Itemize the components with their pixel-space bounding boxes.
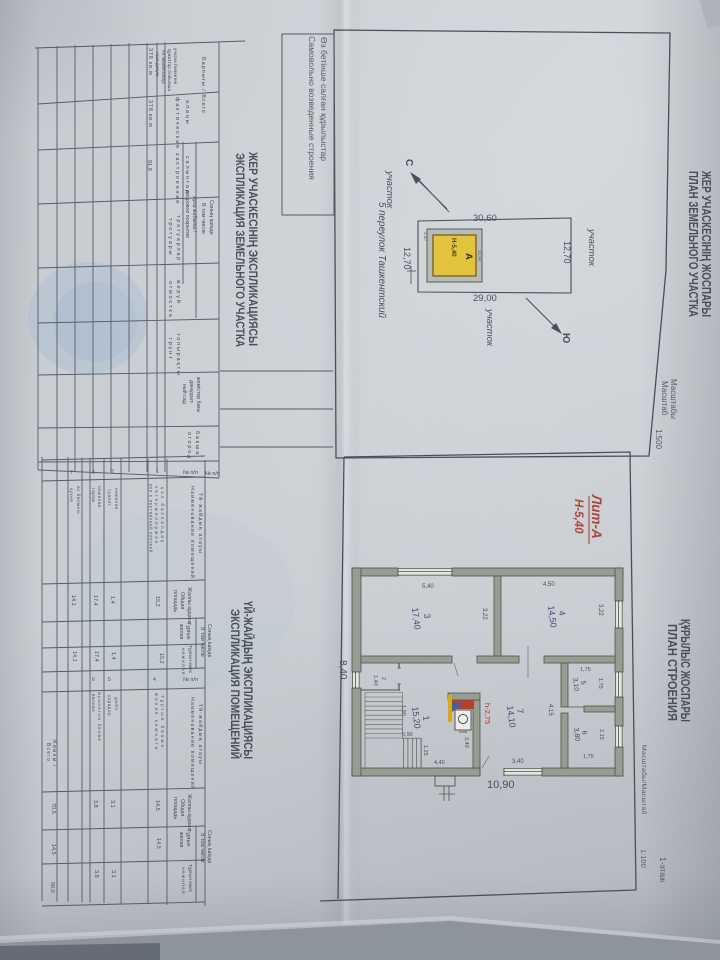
svg-text:әула жабыны /: әула жабыны / xyxy=(191,196,197,233)
svg-text:7: 7 xyxy=(70,470,73,476)
svg-text:Тұрғын бөлме: Тұрғын бөлме xyxy=(160,695,165,749)
svg-text:Үй-жайдың атауы: Үй-жайдың атауы xyxy=(197,704,204,765)
svg-text:Тұрғын: Тұрғын xyxy=(185,622,191,640)
svg-text:№ п/п: № п/п xyxy=(183,677,198,683)
svg-text:1,75: 1,75 xyxy=(597,678,603,689)
svg-text:91,8: 91,8 xyxy=(146,160,152,171)
svg-text:1,90: 1,90 xyxy=(400,705,406,716)
svg-text:1,4: 1,4 xyxy=(109,596,115,604)
svg-text:3,22: 3,22 xyxy=(481,608,487,620)
svg-text:нежилая: нежилая xyxy=(180,867,185,895)
svg-text:1-этаж: 1-этаж xyxy=(658,857,668,883)
svg-text:тротуарлар: тротуарлар xyxy=(175,215,181,262)
svg-text:дәнқорат-: дәнқорат- xyxy=(188,380,194,404)
svg-text:1,75: 1,75 xyxy=(583,754,594,760)
svg-text:Үй-жайдың атауы: Үй-жайдың атауы xyxy=(197,493,204,554)
svg-text:по землеотвод-: по землеотвод- xyxy=(160,50,165,85)
svg-text:В том числе: В том числе xyxy=(199,627,205,657)
svg-text:2: 2 xyxy=(111,469,114,475)
svg-text:грунт: грунт xyxy=(167,338,173,360)
svg-text:2,40: 2,40 xyxy=(463,737,469,748)
svg-text:15,2: 15,2 xyxy=(154,596,160,607)
svg-text:топырақты: топырақты xyxy=(175,333,181,377)
svg-text:жуынатын бөлме: жуынатын бөлме xyxy=(97,692,102,742)
svg-text:ным докум.: ным докум. xyxy=(154,52,159,77)
svg-text:Соның ішінде: Соның ішінде xyxy=(206,624,212,658)
svg-text:3,8: 3,8 xyxy=(93,870,99,878)
svg-text:жилая комната: жилая комната xyxy=(154,693,159,751)
svg-text:учаске бөлінгені: учаске бөлінгені xyxy=(172,48,178,84)
svg-text:ПЛАН СТРОЕНИЯ: ПЛАН СТРОЕНИЯ xyxy=(665,624,679,721)
svg-text:қол с лестничной клеткой: қол с лестничной клеткой xyxy=(149,484,154,553)
svg-text:5: 5 xyxy=(108,677,111,683)
svg-text:огород: огород xyxy=(186,432,192,460)
svg-text:3,40: 3,40 xyxy=(512,759,524,765)
svg-text:ный сад: ный сад xyxy=(181,384,188,404)
svg-text:Тұрғын: Тұрғын xyxy=(185,829,191,847)
svg-text:Тұрғын емес: Тұрғын емес xyxy=(187,864,193,893)
svg-text:Өз бетінше салған құрылыстар: Өз бетінше салған құрылыстар xyxy=(319,37,329,161)
svg-text:участок: участок xyxy=(586,228,597,267)
svg-text:бақша: бақша xyxy=(194,431,200,456)
svg-text:жерүй: жерүй xyxy=(175,280,182,305)
svg-text:Жалпы аудани: Жалпы аудани xyxy=(186,587,192,623)
svg-text:ЖЕР УЧАСКЕСІНІҢ ЭКСПЛИКАЦИЯСЫ: ЖЕР УЧАСКЕСІНІҢ ЭКСПЛИКАЦИЯСЫ xyxy=(246,151,260,346)
svg-text:17,4: 17,4 xyxy=(92,595,98,606)
svg-text:А: А xyxy=(463,253,474,260)
svg-text:1: 1 xyxy=(156,469,159,475)
svg-text:ҚҰРЫЛЫС ЖОСПАРЫ: ҚҰРЫЛЫС ЖОСПАРЫ xyxy=(678,619,692,722)
svg-text:29,00: 29,00 xyxy=(473,293,497,304)
svg-text:17,4: 17,4 xyxy=(93,651,99,662)
svg-text:алаңы: алаңы xyxy=(184,100,190,125)
svg-text:ЖЕР УЧАСКЕСІНІҢ ЖОСПАРЫ: ЖЕР УЧАСКЕСІНІҢ ЖОСПАРЫ xyxy=(699,170,713,317)
svg-text:Лит-А: Лит-А xyxy=(589,494,604,539)
svg-text:нежилая: нежилая xyxy=(97,486,102,508)
svg-text:Наименование помещений: Наименование помещений xyxy=(189,697,196,790)
svg-text:площадь: площадь xyxy=(172,797,178,819)
svg-text:құжаттар бойынша: құжаттар бойынша xyxy=(166,49,173,91)
svg-text:қол баспалдақ: қол баспалдақ xyxy=(160,487,165,544)
svg-text:1,40: 1,40 xyxy=(372,675,378,686)
svg-text:4: 4 xyxy=(153,677,156,683)
svg-text:70,5: 70,5 xyxy=(50,803,56,814)
svg-text:14,5: 14,5 xyxy=(155,838,161,849)
svg-text:ванная: ванная xyxy=(91,694,96,712)
svg-text:ЭКСПЛИКАЦИЯ ПОМЕЩЕНИЙ: ЭКСПЛИКАЦИЯ ПОМЕЩЕНИЙ xyxy=(228,609,243,759)
svg-text:Жалпы аудани: Жалпы аудани xyxy=(186,794,192,830)
svg-text:378 кв.м: 378 кв.м xyxy=(147,100,153,128)
svg-text:3,22: 3,22 xyxy=(597,604,603,616)
svg-text:1:100: 1:100 xyxy=(639,849,648,868)
svg-text:ас бөлмесі: ас бөлмесі xyxy=(76,486,81,514)
svg-text:площадь: площадь xyxy=(172,590,178,612)
svg-text:отмостка: отмостка xyxy=(167,281,173,319)
svg-text:нежилая: нежилая xyxy=(180,648,185,676)
svg-text:Соның ішінде: Соның ішінде xyxy=(206,830,212,864)
svg-text:4,40: 4,40 xyxy=(434,760,445,766)
svg-text:№ п/п: № п/п xyxy=(205,471,220,477)
svg-text:8,40: 8,40 xyxy=(337,660,348,680)
svg-text:ПЛАН ЗЕМЕЛЬНОГО УЧАСТКА: ПЛАН ЗЕМЕЛЬНОГО УЧАСТКА xyxy=(686,171,700,317)
svg-text:5,40: 5,40 xyxy=(422,584,434,590)
svg-text:дворовое покрытие: дворовое покрытие xyxy=(184,190,190,238)
svg-text:Всего: Всего xyxy=(45,743,51,762)
svg-text:378 кв.м: 378 кв.м xyxy=(147,48,153,76)
svg-text:Общая: Общая xyxy=(179,799,185,816)
svg-text:көтермелермен: көтермелермен xyxy=(154,486,159,545)
svg-text:56,0: 56,0 xyxy=(49,882,55,893)
svg-text:Общая: Общая xyxy=(179,592,185,609)
svg-text:Соның ішінде: Соның ішінде xyxy=(208,200,214,235)
svg-text:жилая: жилая xyxy=(178,624,184,640)
svg-text:14,1: 14,1 xyxy=(71,651,77,662)
svg-text:Самовольно возведенные строени: Самовольно возведенные строения xyxy=(307,36,317,180)
svg-text:12,70: 12,70 xyxy=(562,241,572,264)
svg-text:нежилая: нежилая xyxy=(114,488,119,510)
svg-text:салынған: салынған xyxy=(184,156,190,195)
svg-text:12,70: 12,70 xyxy=(402,247,412,270)
svg-text:15,2: 15,2 xyxy=(158,653,164,664)
svg-text:4,15: 4,15 xyxy=(547,704,553,716)
svg-text:Н-5,40: Н-5,40 xyxy=(450,238,457,257)
svg-text:Масштабы/Масштаб: Масштабы/Масштаб xyxy=(640,745,648,815)
svg-text:застроенная: застроенная xyxy=(174,153,180,205)
svg-text:Масштабы: Масштабы xyxy=(669,379,678,419)
svg-text:жемістер бағы: жемістер бағы xyxy=(195,377,201,412)
svg-text:В том числе: В том числе xyxy=(200,203,206,234)
svg-text:4,50: 4,50 xyxy=(543,582,555,588)
svg-text:3: 3 xyxy=(92,470,95,476)
svg-text:Наименование помещений: Наименование помещений xyxy=(189,486,196,579)
svg-text:гараж: гараж xyxy=(91,488,96,503)
svg-text:Барлығы / Всего: Барлығы / Всего xyxy=(200,57,206,114)
svg-text:ҮЙ-ЖАЙДЫҢ ЭКСПЛИКАЦИЯСЫ: ҮЙ-ЖАЙДЫҢ ЭКСПЛИКАЦИЯСЫ xyxy=(241,601,256,759)
svg-text:30,60: 30,60 xyxy=(473,213,497,224)
svg-text:тротуары: тротуары xyxy=(167,218,173,256)
svg-text:3,1: 3,1 xyxy=(110,870,116,878)
svg-text:дәліз: дәліз xyxy=(114,697,119,711)
svg-text:4,60: 4,60 xyxy=(423,232,428,241)
svg-text:В том числе: В том числе xyxy=(199,833,205,863)
svg-text:5 переулок Ташкентский: 5 переулок Ташкентский xyxy=(376,202,387,319)
svg-text:3,1: 3,1 xyxy=(109,800,115,808)
svg-text:2,15: 2,15 xyxy=(598,729,604,740)
svg-text:фактическая: фактическая xyxy=(174,97,180,150)
svg-text:0,90: 0,90 xyxy=(402,732,413,738)
svg-text:2: 2 xyxy=(380,677,386,680)
svg-text:14,1: 14,1 xyxy=(70,595,76,606)
svg-text:6: 6 xyxy=(92,677,95,683)
svg-text:ЭКСПЛИКАЦИЯ ЗЕМЕЛЬНОГО УЧАСТКА: ЭКСПЛИКАЦИЯ ЗЕМЕЛЬНОГО УЧАСТКА xyxy=(233,153,247,347)
svg-text:Тұрғын емес: Тұрғын емес xyxy=(187,645,193,674)
svg-text:14,5: 14,5 xyxy=(50,844,56,855)
svg-text:10,90: 10,90 xyxy=(477,250,482,262)
svg-text:туалет: туалет xyxy=(107,489,112,507)
svg-text:С: С xyxy=(403,159,414,166)
svg-text:Ю: Ю xyxy=(560,333,571,343)
svg-text:Масштаб: Масштаб xyxy=(660,381,669,416)
svg-text:участок: участок xyxy=(484,308,495,347)
svg-text:жилая: жилая xyxy=(178,832,184,848)
svg-text:1,25: 1,25 xyxy=(422,745,428,756)
svg-text:14,5: 14,5 xyxy=(154,800,160,811)
svg-text:h-2,75: h-2,75 xyxy=(483,703,492,724)
svg-text:№ п/п: № п/п xyxy=(183,470,198,476)
svg-text:1,4: 1,4 xyxy=(110,652,116,660)
svg-text:3,8: 3,8 xyxy=(92,800,98,808)
svg-text:Н-5,40: Н-5,40 xyxy=(572,499,584,534)
svg-text:коридор: коридор xyxy=(107,695,112,716)
svg-text:кухня: кухня xyxy=(69,488,74,502)
svg-text:10,90: 10,90 xyxy=(487,779,515,791)
svg-text:1:500: 1:500 xyxy=(654,429,663,450)
svg-text:1,75: 1,75 xyxy=(580,667,591,673)
